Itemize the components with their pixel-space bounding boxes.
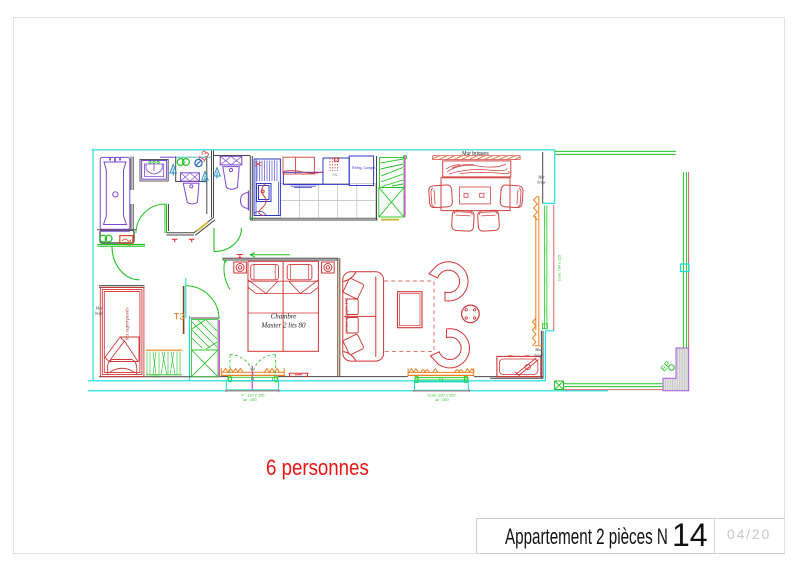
svg-text:al : 100: al : 100 bbox=[435, 397, 449, 402]
svg-text:Coul. 764 x 225: Coul. 764 x 225 bbox=[558, 255, 562, 282]
svg-text:EP: EP bbox=[659, 359, 673, 373]
svg-text:beige: beige bbox=[537, 181, 546, 185]
svg-text:lits superposés: lits superposés bbox=[125, 307, 131, 340]
svg-text:GN: GN bbox=[332, 173, 338, 177]
svg-text:13: 13 bbox=[196, 148, 213, 164]
svg-text:Mur: Mur bbox=[95, 307, 103, 311]
svg-text:Mur briques: Mur briques bbox=[462, 151, 489, 157]
svg-text:canapé gigogne 140: canapé gigogne 140 bbox=[344, 297, 349, 334]
svg-text:Master 2 lits 80: Master 2 lits 80 bbox=[260, 322, 306, 330]
svg-text:T3: T3 bbox=[174, 312, 185, 323]
svg-text:Mur: Mur bbox=[537, 176, 545, 180]
svg-text:beige: beige bbox=[534, 354, 543, 358]
svg-text:beige: beige bbox=[95, 312, 104, 316]
svg-text:Réfrig. Congél.: Réfrig. Congél. bbox=[352, 166, 376, 170]
svg-text:+2/+3: +2/+3 bbox=[151, 375, 160, 379]
svg-text:Chambre: Chambre bbox=[271, 313, 297, 321]
svg-text:Mur: Mur bbox=[534, 348, 542, 352]
svg-text:al : 100: al : 100 bbox=[243, 397, 257, 402]
